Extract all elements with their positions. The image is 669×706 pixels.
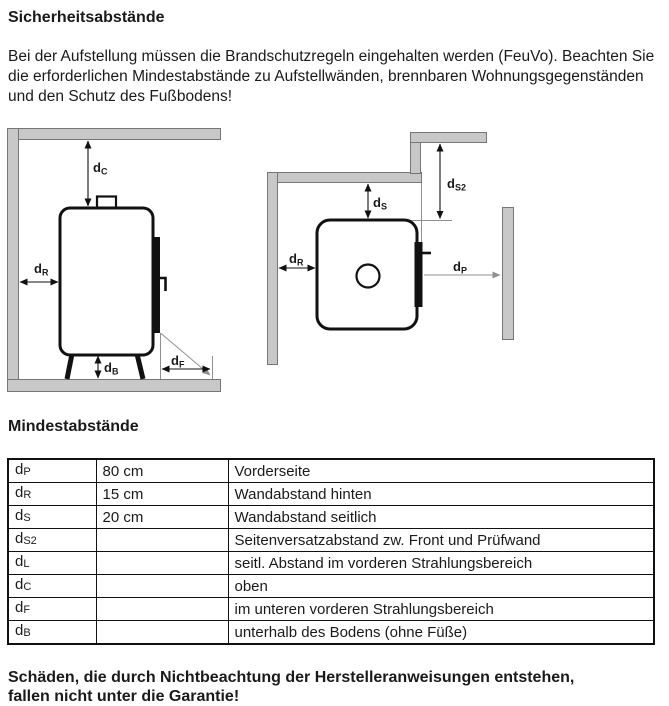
door-handle-side	[160, 278, 166, 291]
manual-page: Sicherheitsabstände Bei der Aufstellung …	[0, 9, 669, 706]
symbol-cell: dC	[8, 575, 96, 598]
symbol-cell: dS2	[8, 529, 96, 552]
value-cell	[96, 575, 228, 598]
value-cell: 20 cm	[96, 506, 228, 529]
symbol-cell: dS	[8, 506, 96, 529]
test-wall-side	[411, 133, 487, 143]
description-cell: oben	[228, 575, 654, 598]
table-row: dP 80 cm Vorderseite	[8, 459, 654, 483]
intro-paragraph: Bei der Aufstellung müssen die Brandschu…	[8, 47, 664, 107]
rear-wall	[8, 129, 19, 380]
flue-outlet	[357, 265, 380, 288]
diagrams-figure: dC dR dB dF	[0, 125, 669, 400]
stove-leg-left	[67, 354, 72, 379]
table-row: dF im unteren vorderen Strahlungsbereich	[8, 598, 654, 621]
value-cell	[96, 598, 228, 621]
symbol-cell: dP	[8, 459, 96, 483]
label-dR-top: dR	[289, 251, 304, 268]
ceiling	[8, 129, 221, 140]
value-cell: 15 cm	[96, 483, 228, 506]
table-row: dC oben	[8, 575, 654, 598]
description-cell: Vorderseite	[228, 459, 654, 483]
stove-door-side	[153, 237, 160, 333]
page-title: Sicherheitsabstände	[8, 9, 669, 27]
symbol-cell: dB	[8, 621, 96, 645]
label-dR-side: dR	[34, 261, 49, 278]
table-row: dB unterhalb des Bodens (ohne Füße)	[8, 621, 654, 645]
description-cell: seitl. Abstand im vorderen Strahlungsber…	[228, 552, 654, 575]
value-cell: 80 cm	[96, 459, 228, 483]
description-cell: Wandabstand hinten	[228, 483, 654, 506]
label-dF: dF	[171, 353, 185, 370]
table-row: dL seitl. Abstand im vorderen Strahlungs…	[8, 552, 654, 575]
value-cell	[96, 621, 228, 645]
label-dS2: dS2	[447, 176, 466, 193]
description-cell: im unteren vorderen Strahlungsbereich	[228, 598, 654, 621]
symbol-cell: dF	[8, 598, 96, 621]
test-wall-front	[503, 208, 514, 340]
warranty-warning: Schäden, die durch Nichtbeachtung der He…	[8, 668, 664, 706]
wall-offset-step	[411, 143, 421, 174]
symbol-cell: dL	[8, 552, 96, 575]
label-dB: dB	[104, 360, 119, 377]
side-wall-top	[268, 173, 422, 183]
min-distances-table: dP 80 cm Vorderseite dR 15 cm Wandabstan…	[7, 458, 655, 645]
label-dC: dC	[93, 160, 108, 177]
table-row: dS2 Seitenversatzabstand zw. Front und P…	[8, 529, 654, 552]
rear-wall-top	[268, 173, 278, 365]
symbol-cell: dR	[8, 483, 96, 506]
value-cell	[96, 552, 228, 575]
table-row: dR 15 cm Wandabstand hinten	[8, 483, 654, 506]
label-dS: dS	[373, 195, 387, 212]
description-cell: unterhalb des Bodens (ohne Füße)	[228, 621, 654, 645]
stove-body-side	[60, 208, 153, 355]
value-cell	[96, 529, 228, 552]
description-cell: Wandabstand seitlich	[228, 506, 654, 529]
floor	[8, 380, 221, 392]
table-row: dS 20 cm Wandabstand seitlich	[8, 506, 654, 529]
stove-door-top	[415, 242, 423, 307]
stove-leg-right	[137, 354, 143, 379]
side-view-diagram: dC dR dB dF	[8, 129, 221, 392]
description-cell: Seitenversatzabstand zw. Front und Prüfw…	[228, 529, 654, 552]
section-heading: Mindestabstände	[8, 418, 669, 436]
warranty-warning-line1: Schäden, die durch Nichtbeachtung der He…	[8, 669, 574, 686]
safety-distance-diagrams: dC dR dB dF	[0, 125, 669, 400]
warranty-warning-line2: fallen nicht unter die Garantie!	[8, 688, 239, 705]
label-dP: dP	[453, 259, 467, 276]
top-view-diagram: dS dS2 dR dP	[268, 133, 514, 365]
